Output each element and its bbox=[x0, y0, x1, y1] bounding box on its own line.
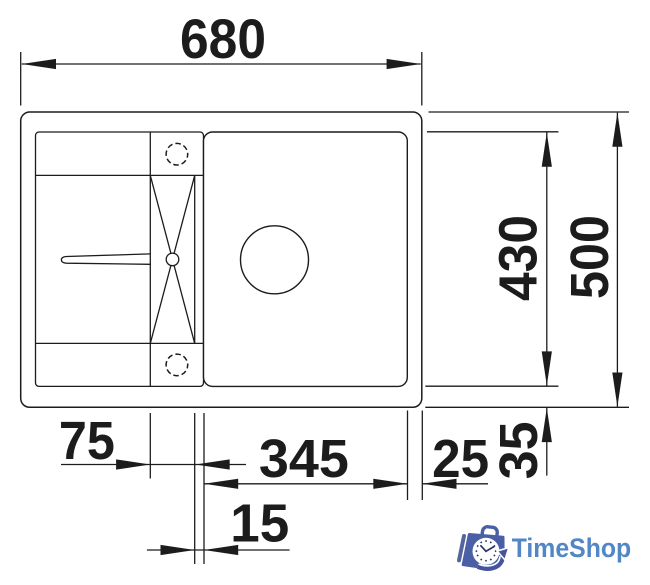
svg-text:680: 680 bbox=[180, 7, 266, 70]
svg-text:15: 15 bbox=[230, 494, 289, 554]
svg-text:500: 500 bbox=[560, 215, 620, 299]
svg-text:25: 25 bbox=[432, 429, 489, 489]
svg-text:TimeShop: TimeShop bbox=[512, 533, 632, 563]
svg-text:75: 75 bbox=[59, 411, 115, 471]
svg-text:35: 35 bbox=[489, 421, 549, 479]
svg-text:345: 345 bbox=[259, 429, 349, 489]
svg-text:430: 430 bbox=[488, 215, 548, 301]
